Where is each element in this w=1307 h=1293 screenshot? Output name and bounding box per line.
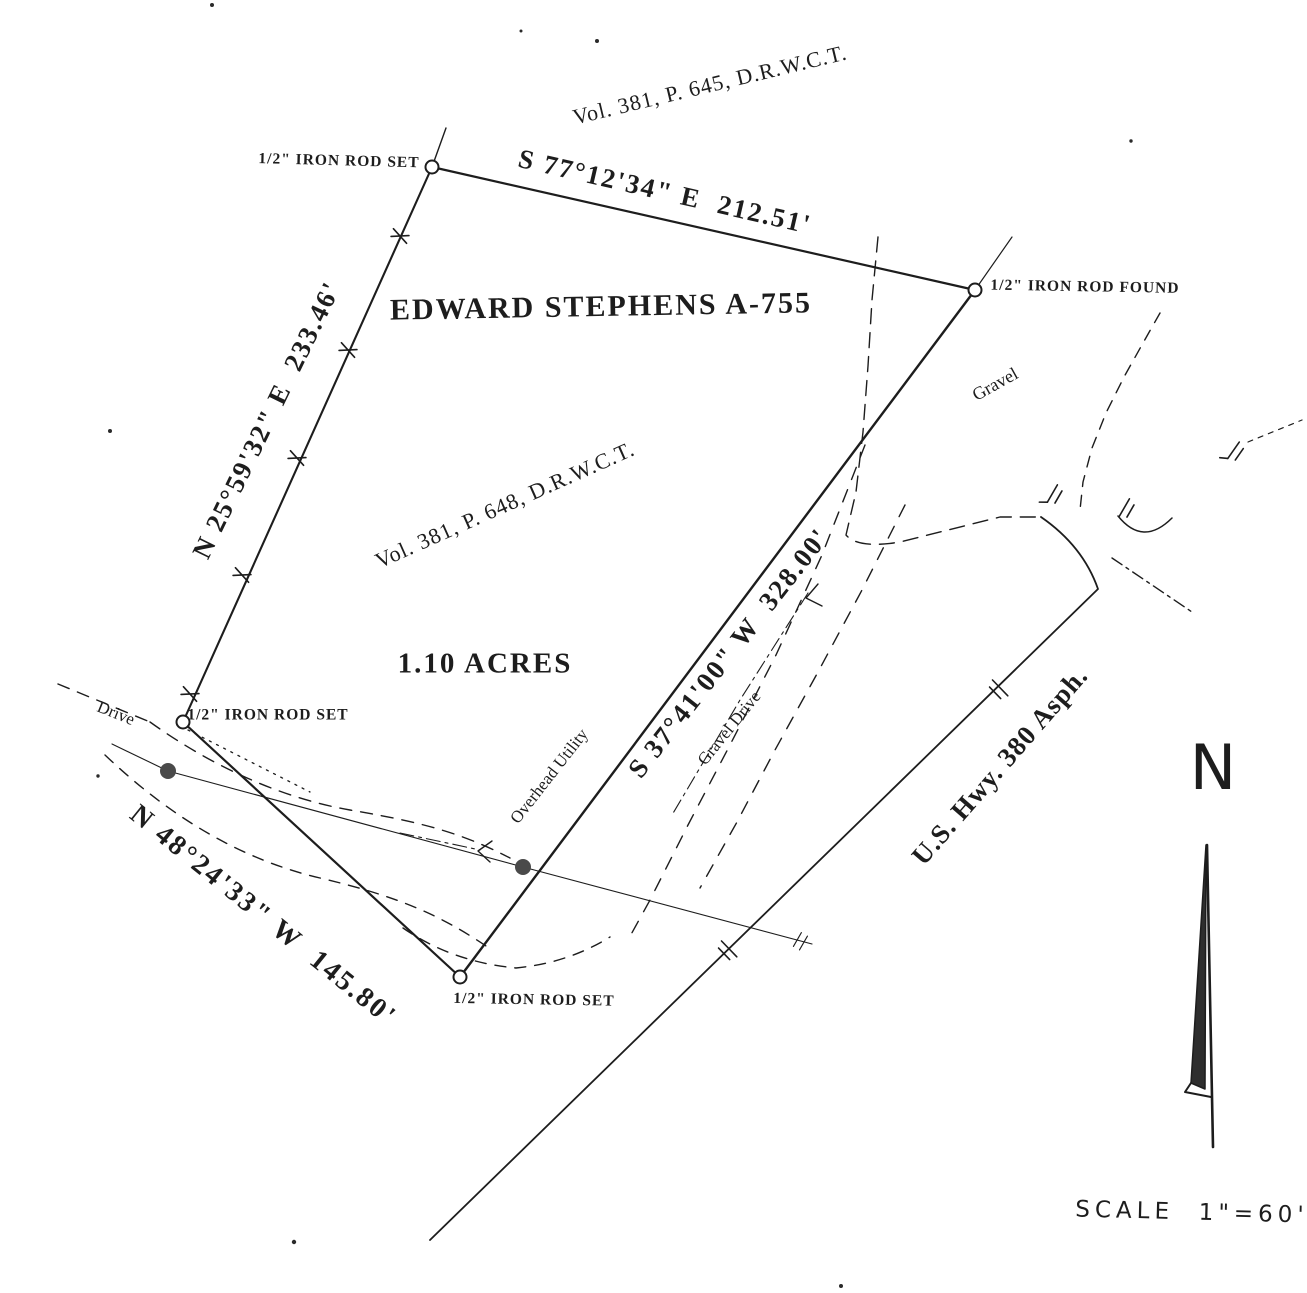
survey-plat-page: Vol. 381, P. 645, D.R.W.C.T. S 77°12'34"… bbox=[0, 0, 1307, 1293]
specks bbox=[96, 3, 1132, 1288]
monument-label-west: 1/2" IRON ROD SET bbox=[187, 707, 348, 723]
scale-label: SCALE 1"=60' bbox=[1075, 1198, 1307, 1227]
monument-label-northeast: 1/2" IRON ROD FOUND bbox=[990, 278, 1179, 297]
gravel-drive-edges bbox=[628, 237, 1302, 940]
corner-monuments bbox=[177, 161, 982, 984]
parcel-boundary bbox=[183, 128, 1012, 977]
parcel-area: 1.10 ACRES bbox=[398, 650, 573, 679]
fence-ticks bbox=[180, 229, 410, 702]
monument-label-south: 1/2" IRON ROD SET bbox=[453, 991, 615, 1009]
survey-name: EDWARD STEPHENS A-755 bbox=[390, 288, 813, 325]
north-arrow bbox=[1185, 845, 1213, 1147]
north-arrow-letter: N bbox=[1190, 737, 1236, 799]
